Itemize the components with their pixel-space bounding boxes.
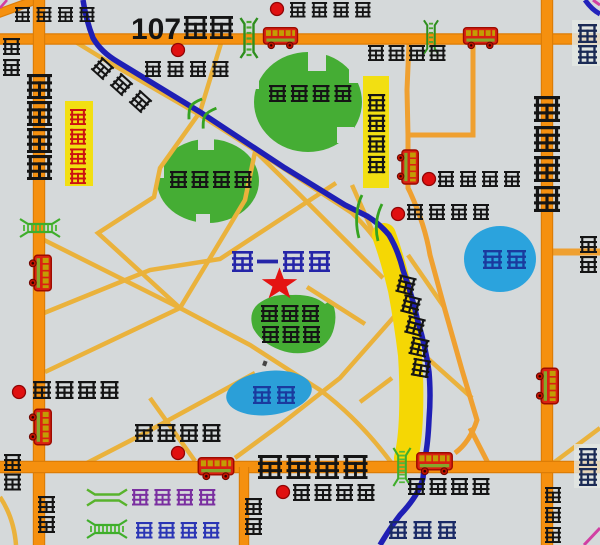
svg-text:107: 107: [131, 13, 181, 46]
